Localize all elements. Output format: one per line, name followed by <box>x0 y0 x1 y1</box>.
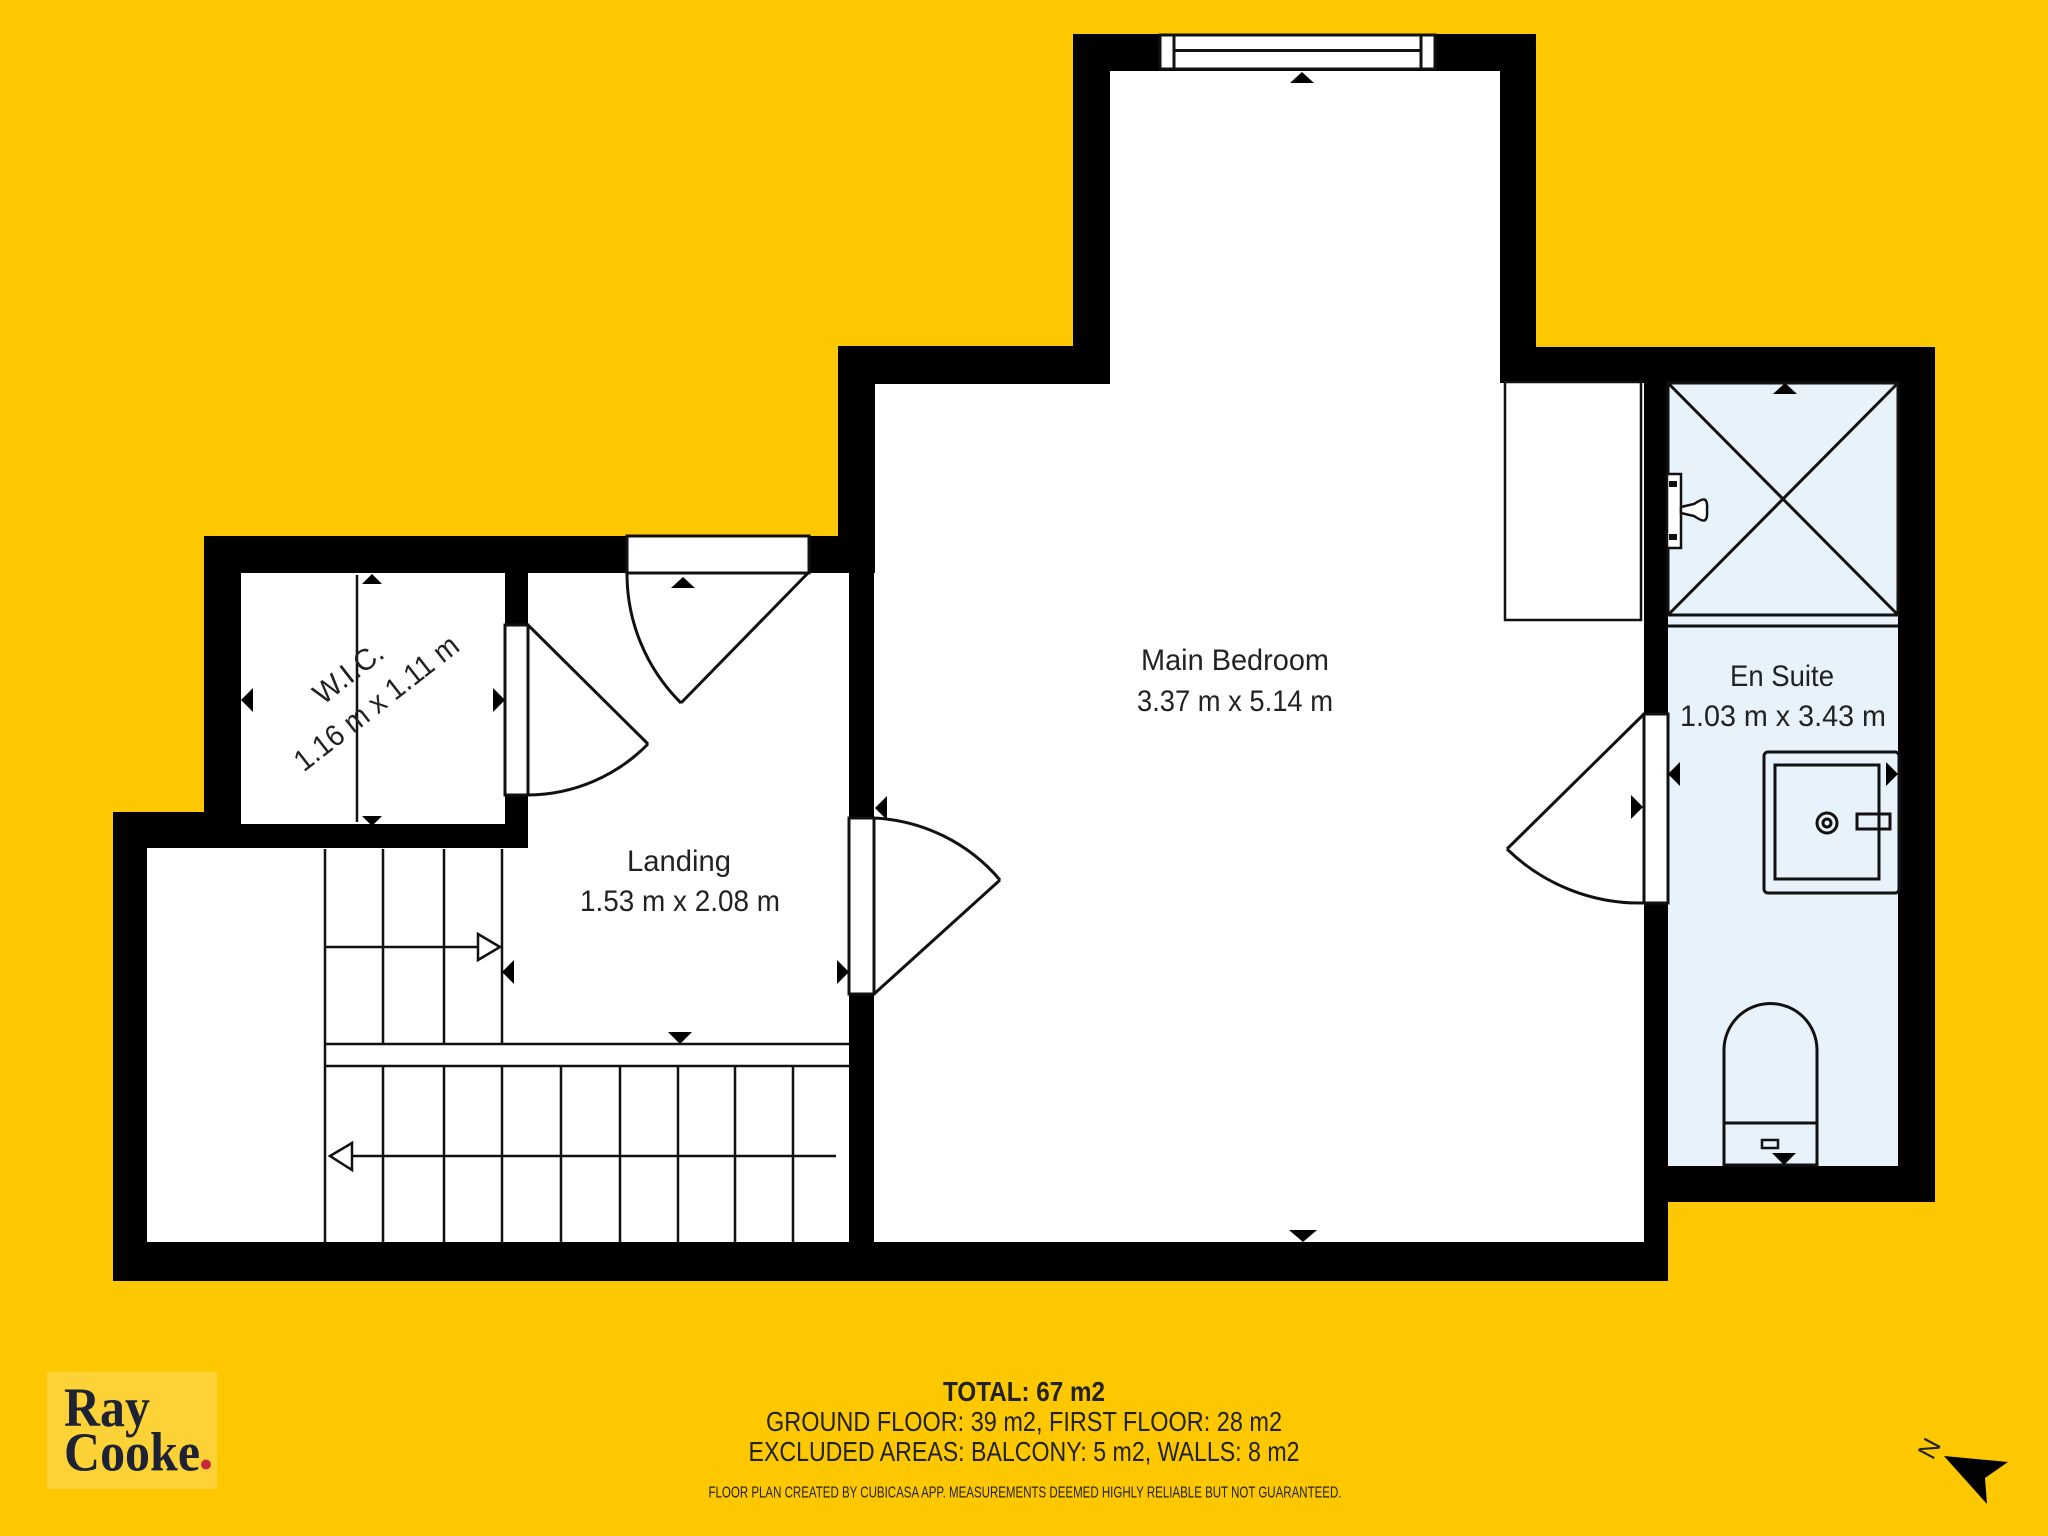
svg-text:3.37 m x 5.14 m: 3.37 m x 5.14 m <box>1137 685 1333 718</box>
svg-text:Main Bedroom: Main Bedroom <box>1141 644 1329 677</box>
svg-text:1.03 m x 3.43 m: 1.03 m x 3.43 m <box>1680 700 1886 733</box>
svg-text:1.53 m x 2.08 m: 1.53 m x 2.08 m <box>580 885 780 918</box>
svg-text:TOTAL: 67 m2: TOTAL: 67 m2 <box>943 1376 1105 1407</box>
svg-text:Cooke: Cooke <box>64 1422 200 1483</box>
svg-text:FLOOR PLAN CREATED BY CUBICASA: FLOOR PLAN CREATED BY CUBICASA APP. MEAS… <box>709 1485 1342 1502</box>
svg-text:Landing: Landing <box>627 845 731 878</box>
svg-text:En Suite: En Suite <box>1730 660 1834 693</box>
svg-text:GROUND FLOOR: 39 m2, FIRST FLO: GROUND FLOOR: 39 m2, FIRST FLOOR: 28 m2 <box>766 1406 1282 1437</box>
svg-text:EXCLUDED AREAS: BALCONY: 5 m2,: EXCLUDED AREAS: BALCONY: 5 m2, WALLS: 8 … <box>749 1436 1300 1467</box>
